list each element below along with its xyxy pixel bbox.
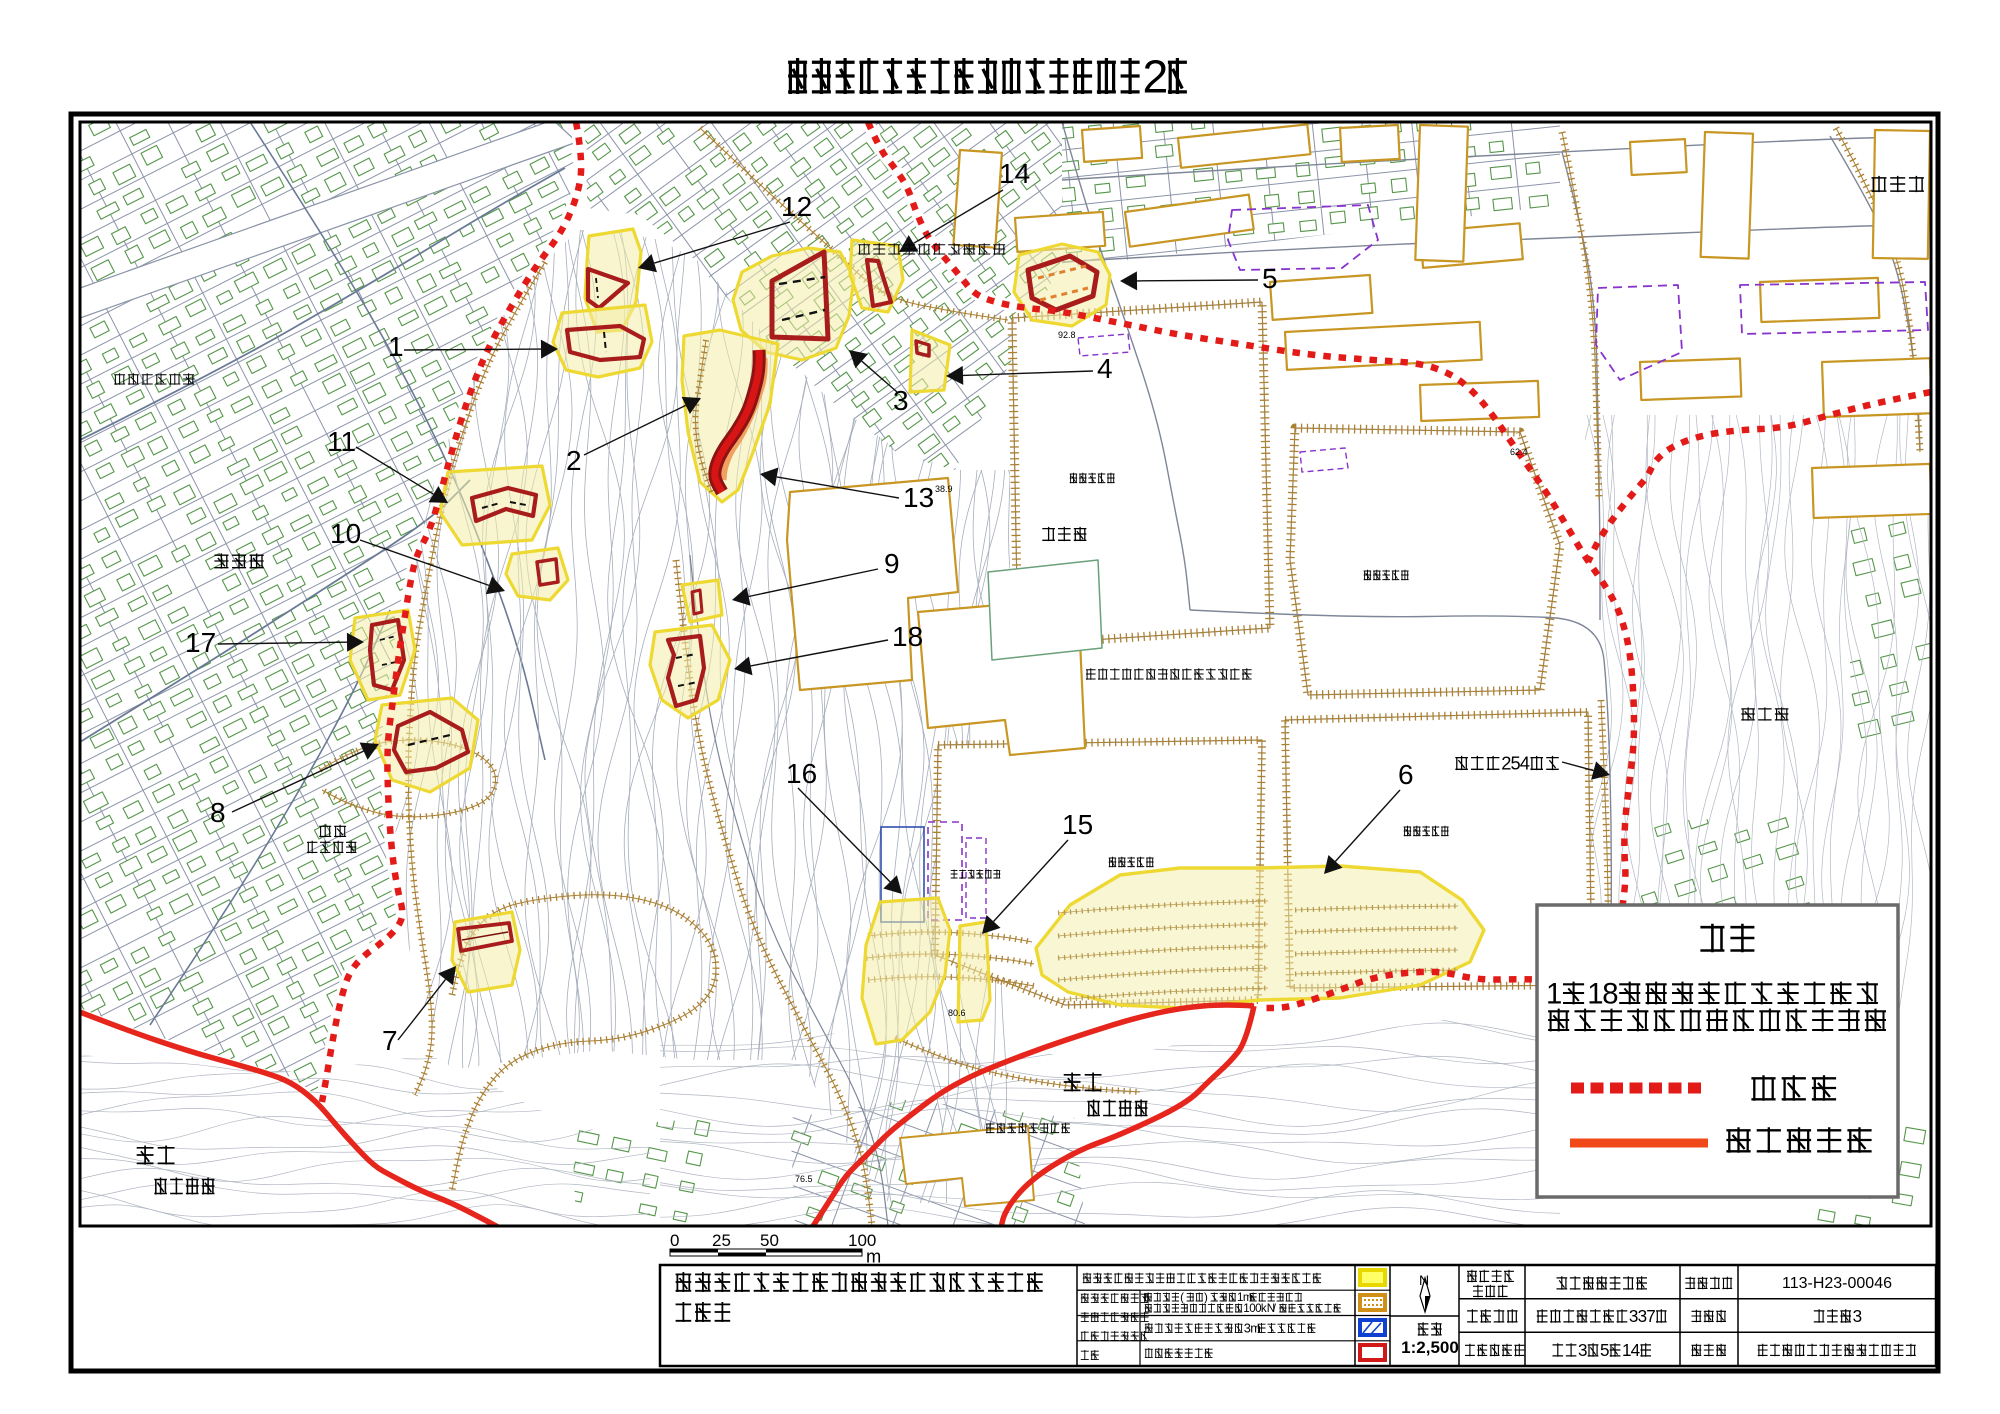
svg-text:16: 16 bbox=[786, 758, 817, 789]
svg-text:4: 4 bbox=[1631, 1341, 1641, 1360]
svg-text:2: 2 bbox=[566, 445, 582, 476]
svg-text:80.6: 80.6 bbox=[948, 1008, 966, 1018]
svg-text:1:2,500: 1:2,500 bbox=[1401, 1338, 1459, 1357]
svg-text:(: ( bbox=[1180, 1291, 1184, 1304]
svg-text:7: 7 bbox=[382, 1025, 398, 1056]
svg-text:0: 0 bbox=[670, 1231, 679, 1250]
svg-text:14: 14 bbox=[999, 158, 1030, 189]
svg-text:6: 6 bbox=[1398, 759, 1414, 790]
svg-text:7: 7 bbox=[1646, 1307, 1656, 1326]
svg-text:4: 4 bbox=[1097, 353, 1113, 384]
svg-text:2: 2 bbox=[1143, 51, 1169, 103]
svg-text:76.5: 76.5 bbox=[795, 1174, 813, 1184]
svg-text:): ) bbox=[1204, 1291, 1208, 1304]
svg-text:1: 1 bbox=[1587, 978, 1603, 1011]
svg-text:12: 12 bbox=[781, 191, 812, 222]
svg-text:38.9: 38.9 bbox=[935, 484, 953, 494]
svg-text:113-H23-00046: 113-H23-00046 bbox=[1782, 1275, 1892, 1292]
svg-text:15: 15 bbox=[1062, 809, 1093, 840]
svg-text:92.8: 92.8 bbox=[1058, 330, 1076, 340]
svg-text:5: 5 bbox=[1600, 1341, 1610, 1360]
svg-text:17: 17 bbox=[185, 627, 216, 658]
svg-text:62.4: 62.4 bbox=[1510, 447, 1528, 457]
svg-text:13: 13 bbox=[903, 482, 934, 513]
svg-text:1: 1 bbox=[388, 331, 404, 362]
svg-text:25: 25 bbox=[712, 1231, 731, 1250]
svg-text:m: m bbox=[866, 1246, 881, 1267]
svg-text:11: 11 bbox=[327, 426, 356, 457]
svg-text:5: 5 bbox=[1262, 263, 1278, 294]
svg-text:8: 8 bbox=[210, 797, 226, 828]
svg-text:1: 1 bbox=[1546, 978, 1562, 1011]
svg-text:18: 18 bbox=[892, 621, 923, 652]
svg-text:3: 3 bbox=[1578, 1341, 1588, 1360]
svg-text:3: 3 bbox=[1853, 1307, 1863, 1326]
svg-text:10: 10 bbox=[330, 518, 361, 549]
svg-text:9: 9 bbox=[884, 548, 900, 579]
svg-text:50: 50 bbox=[760, 1231, 779, 1250]
svg-text:8: 8 bbox=[1602, 978, 1618, 1011]
svg-text:4: 4 bbox=[1520, 753, 1530, 774]
